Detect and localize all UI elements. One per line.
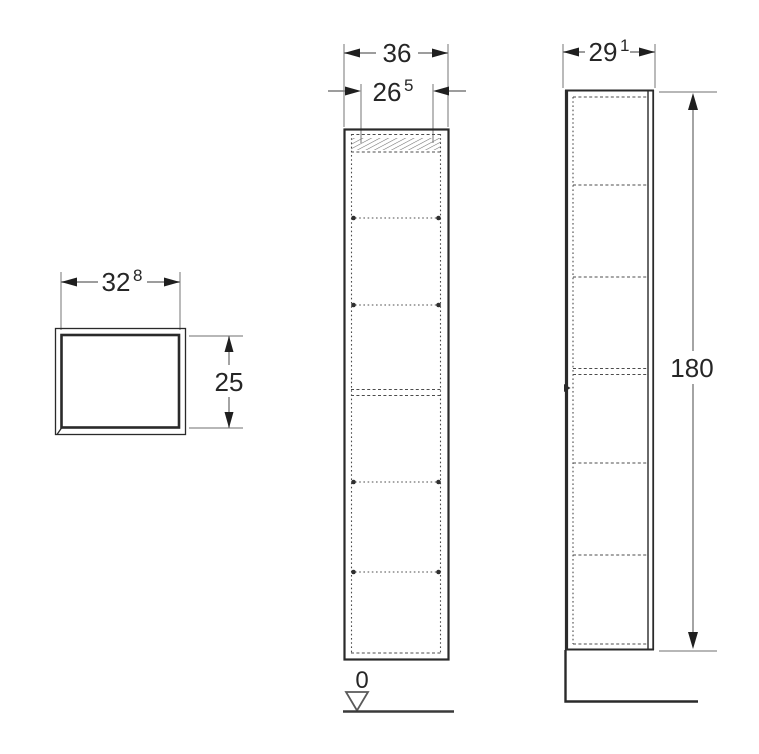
dimension-label: 29 <box>589 37 618 67</box>
shelf-pin <box>436 480 441 485</box>
canvas-background <box>0 0 759 754</box>
shelf-pin <box>351 216 356 221</box>
dimension-label: 32 <box>102 267 131 297</box>
cabinet-dimension-drawing: 32 8 25 36 <box>0 0 759 754</box>
dimension-label: 36 <box>383 38 412 68</box>
mounting-rail-hatch <box>351 138 441 150</box>
shelf-pin <box>436 303 441 308</box>
dimension-label: 25 <box>215 367 244 397</box>
shelf-pin <box>436 216 441 221</box>
shelf-pin <box>351 303 356 308</box>
shelf-pin <box>351 480 356 485</box>
dimension-label-superscript: 8 <box>133 266 142 285</box>
dimension-label: 180 <box>670 353 713 383</box>
dimension-label: 26 <box>373 77 402 107</box>
dimension-label-superscript: 5 <box>404 76 413 95</box>
datum-label: 0 <box>355 667 368 694</box>
dimension-label-superscript: 1 <box>620 36 629 55</box>
shelf-pin <box>351 570 356 575</box>
shelf-pin <box>436 570 441 575</box>
